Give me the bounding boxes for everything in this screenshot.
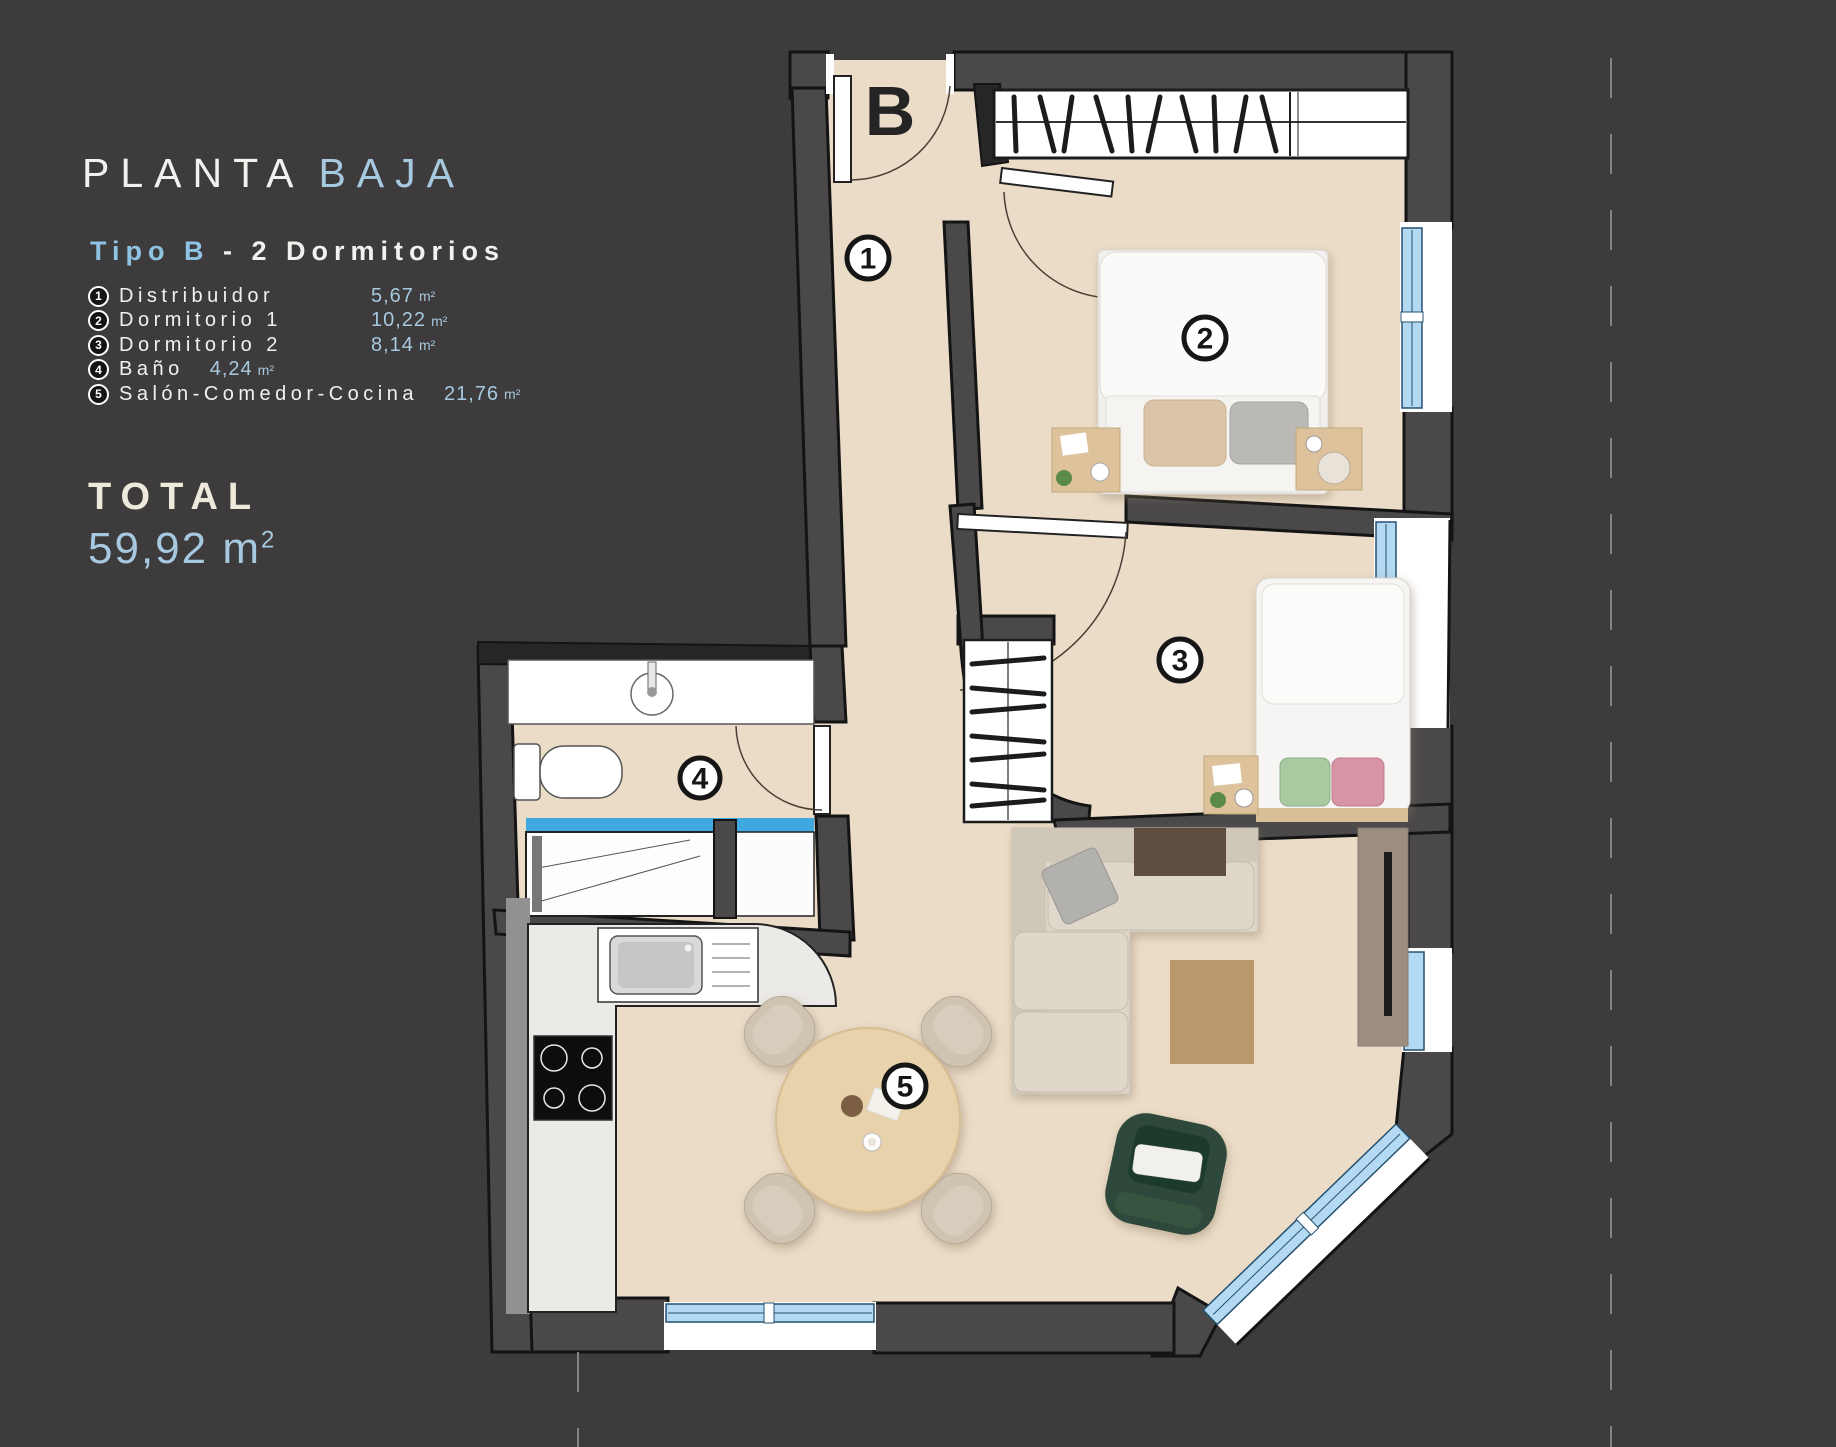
- legend-unit: m²: [419, 337, 435, 353]
- window-bedroom1: [1400, 222, 1452, 412]
- room-marker-1: 1: [847, 237, 889, 279]
- legend-label: Baño: [119, 358, 184, 381]
- legend-unit: m²: [504, 386, 520, 402]
- svg-text:3: 3: [1172, 645, 1189, 678]
- room-marker-2: 2: [1184, 317, 1226, 359]
- subtitle-rooms: - 2 Dormitorios: [223, 236, 505, 266]
- shelf-strip: [1256, 808, 1408, 822]
- wall-segment: [954, 52, 1452, 90]
- legend-value: 5,67: [371, 285, 414, 308]
- legend-bullet: 5: [88, 384, 109, 405]
- wall-segment: [1406, 52, 1452, 228]
- pillow-pink: [1332, 758, 1384, 806]
- block-letter: B: [865, 72, 916, 150]
- total-value: 59,92 m2: [88, 524, 276, 574]
- total-label: TOTAL: [88, 476, 261, 519]
- legend-value: 8,14: [371, 334, 414, 357]
- sideboard-handle: [1384, 852, 1392, 1016]
- title-part1: PLANTA: [82, 150, 304, 196]
- shower-partition: [714, 820, 736, 918]
- legend-unit: m²: [419, 288, 435, 304]
- legend-row-distribuidor: 1 Distribuidor 5,67 m²: [88, 284, 520, 309]
- sideboard: [1358, 828, 1408, 1046]
- legend-bullet: 4: [88, 359, 109, 380]
- legend-value: 4,24: [210, 358, 253, 381]
- subtitle-type: Tipo B: [90, 236, 210, 266]
- svg-text:2: 2: [1197, 323, 1214, 356]
- room-legend: 1 Distribuidor 5,67 m² 2 Dormitorio 1 10…: [88, 284, 520, 407]
- legend-row-dormitorio2: 3 Dormitorio 2 8,14 m²: [88, 333, 520, 358]
- info-panel: PLANTABAJA Tipo B - 2 Dormitorios 1 Dist…: [0, 0, 700, 1447]
- legend-bullet: 1: [88, 286, 109, 307]
- nightstand-right: [1296, 428, 1362, 490]
- wall-segment: [1408, 726, 1452, 952]
- wardrobe-hatched: [964, 640, 1052, 822]
- svg-text:5: 5: [897, 1071, 914, 1104]
- legend-row-salon: 5 Salón-Comedor-Cocina 21,76 m²: [88, 382, 520, 407]
- legend-label: Salón-Comedor-Cocina: [119, 383, 418, 406]
- closet-hatched: [994, 90, 1408, 158]
- room-marker-3: 3: [1159, 639, 1201, 681]
- svg-text:1: 1: [860, 243, 877, 276]
- wall-segment: [874, 1303, 1174, 1353]
- bed-double: [1098, 250, 1328, 494]
- legend-row-bano: 4 Baño 4,24 m²: [88, 358, 520, 383]
- pillow-green: [1280, 758, 1330, 806]
- legend-label: Dormitorio 2: [119, 334, 371, 357]
- desk: [1204, 756, 1258, 814]
- legend-value: 10,22: [371, 309, 426, 332]
- dining-table: [776, 1028, 960, 1212]
- room-marker-5: 5: [884, 1065, 926, 1107]
- legend-value: 21,76: [444, 383, 499, 406]
- legend-row-dormitorio1: 2 Dormitorio 1 10,22 m²: [88, 309, 520, 334]
- legend-unit: m²: [258, 362, 274, 378]
- page-title: PLANTABAJA: [82, 150, 465, 197]
- legend-label: Dormitorio 1: [119, 309, 371, 332]
- window-living-right: [1402, 948, 1452, 1052]
- legend-label: Distribuidor: [119, 285, 371, 308]
- wall-segment: [816, 816, 854, 940]
- pillow-beige: [1144, 400, 1226, 466]
- legend-bullet: 3: [88, 335, 109, 356]
- wall-segment: [810, 646, 846, 722]
- legend-unit: m²: [431, 313, 447, 329]
- rug: [1170, 960, 1254, 1064]
- sofa-throw: [1134, 828, 1226, 876]
- legend-bullet: 2: [88, 310, 109, 331]
- title-part2: BAJA: [318, 150, 465, 196]
- wall-segment: [1404, 408, 1452, 520]
- nightstand-left: [1052, 428, 1120, 492]
- plan-subtitle: Tipo B - 2 Dormitorios: [90, 236, 505, 267]
- page: B 1 2 3 4 5 PLANTABAJA Tipo B: [0, 0, 1836, 1447]
- bed-single: [1256, 578, 1410, 814]
